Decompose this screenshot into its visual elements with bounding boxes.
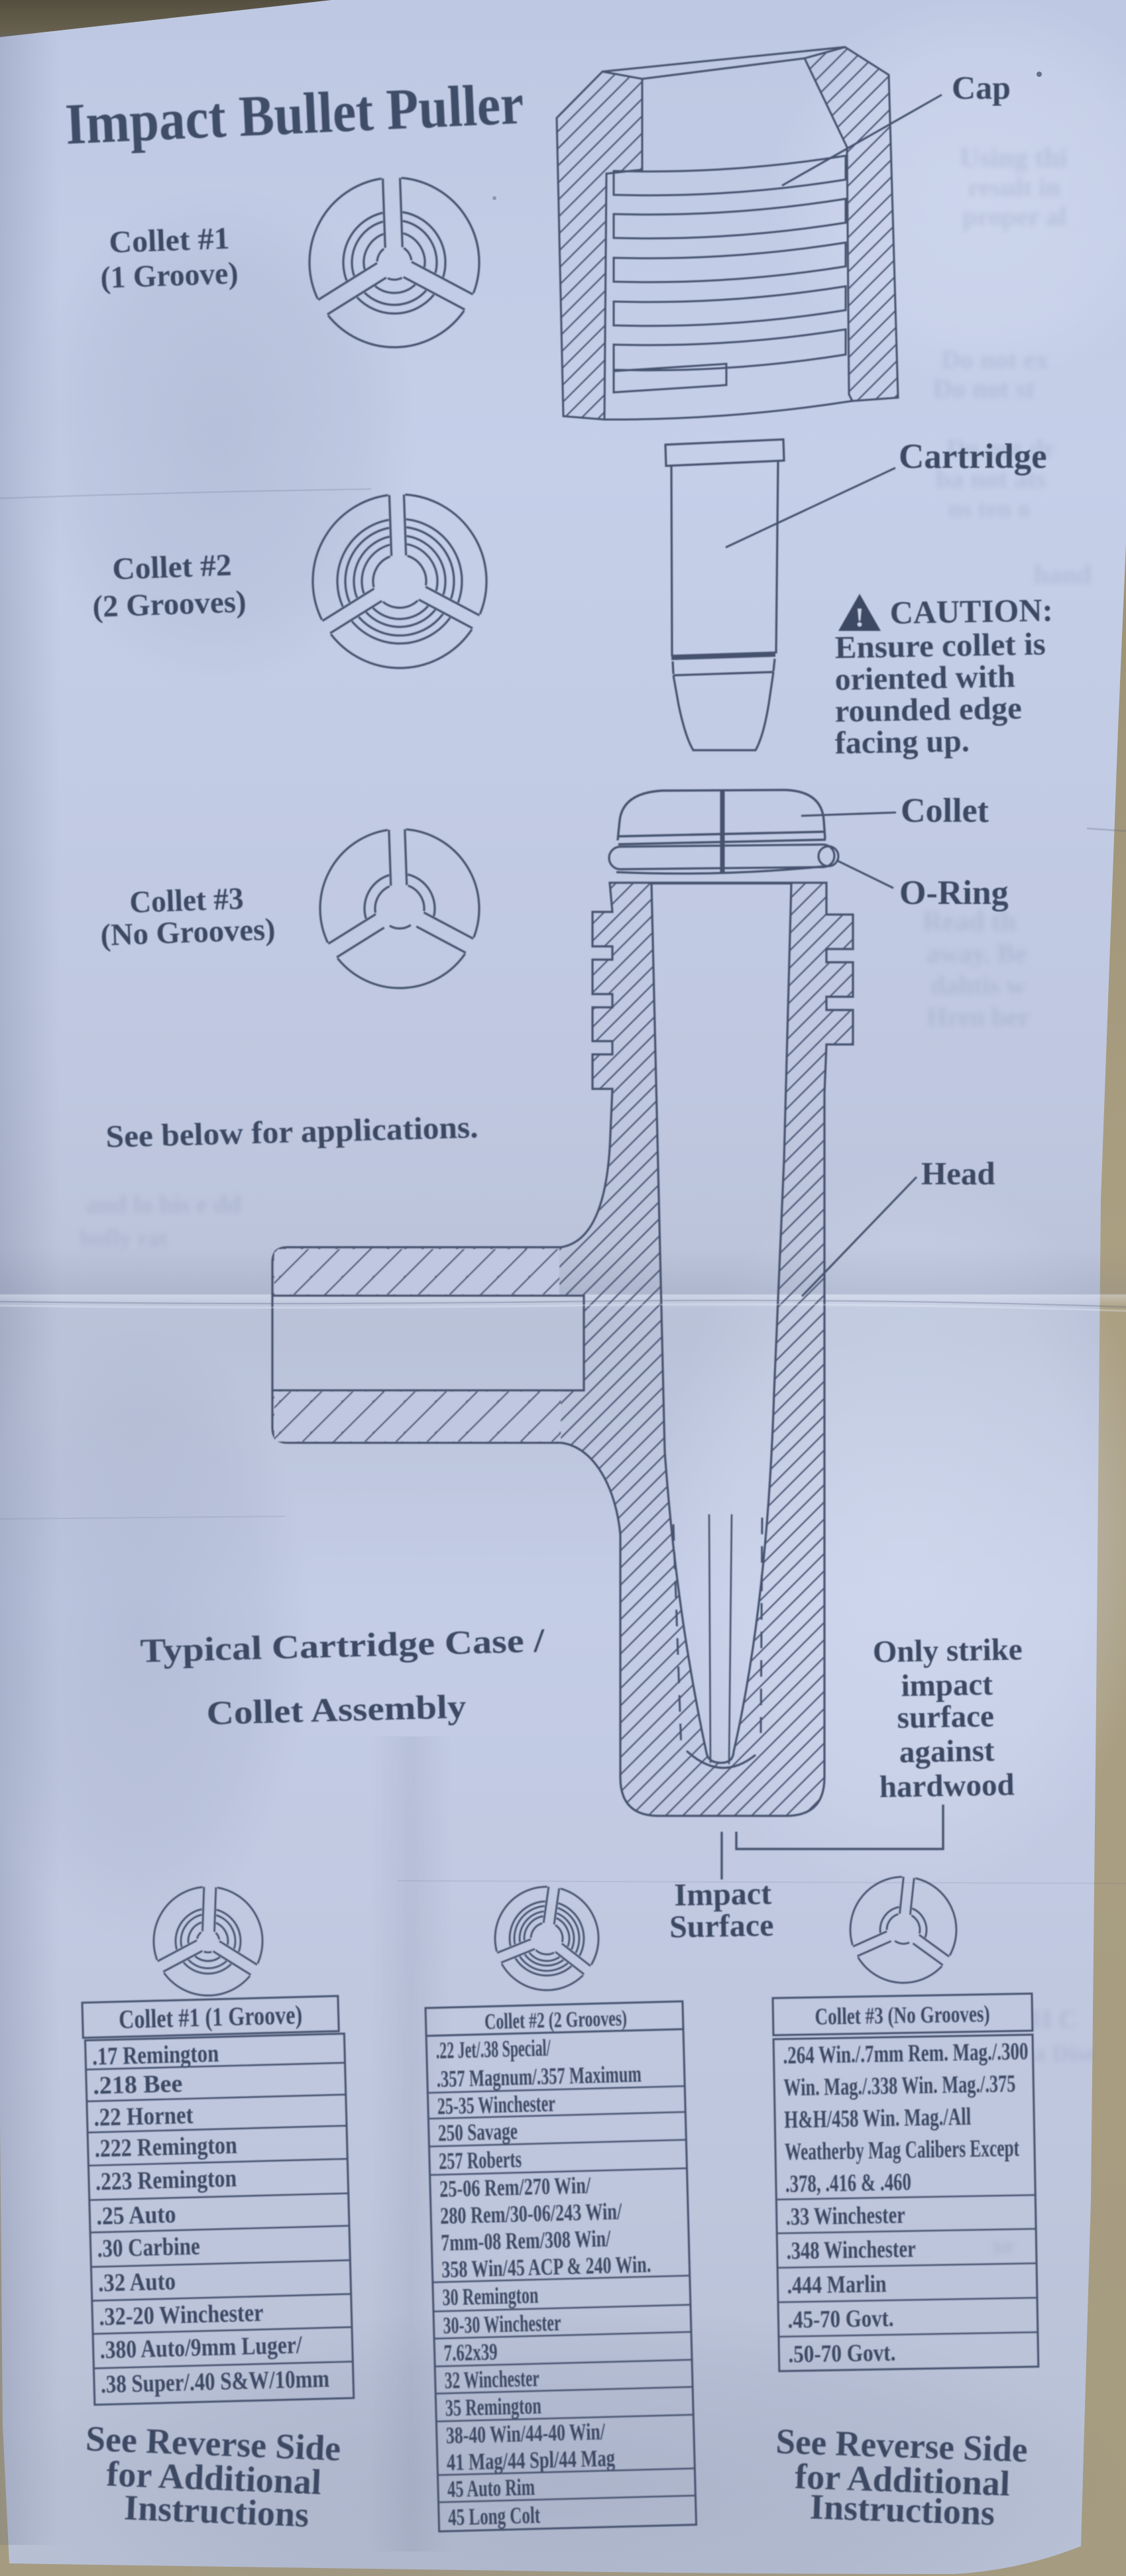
svg-text:Cartridge: Cartridge <box>899 437 1047 476</box>
svg-text:Collet #2: Collet #2 <box>112 548 233 587</box>
svg-text:rounded edge: rounded edge <box>834 691 1022 729</box>
svg-text:.32 Auto: .32 Auto <box>98 2267 176 2297</box>
svg-text:Collet: Collet <box>901 792 989 830</box>
svg-text:O-Ring: O-Ring <box>899 874 1009 912</box>
svg-text:.444 Marlin: .444 Marlin <box>787 2270 887 2300</box>
svg-text:.45-70 Govt.: .45-70 Govt. <box>787 2305 894 2334</box>
svg-text:and lo his e dd: and lo his e dd <box>86 1191 241 1219</box>
svg-text:.33 Winchester: .33 Winchester <box>785 2202 905 2231</box>
svg-text:(2 Grooves): (2 Grooves) <box>92 585 247 624</box>
svg-text:38-40 Win/44-40 Win/: 38-40 Win/44-40 Win/ <box>445 2418 606 2448</box>
svg-text:280 Rem/30-06/243 Win/: 280 Rem/30-06/243 Win/ <box>440 2198 623 2229</box>
svg-text:45 Auto Rim: 45 Auto Rim <box>447 2473 535 2502</box>
svg-text:Collet #3 (No Grooves): Collet #3 (No Grooves) <box>815 2000 990 2030</box>
svg-text:Collet #2 (2 Grooves): Collet #2 (2 Grooves) <box>484 2006 628 2035</box>
svg-text:proper al: proper al <box>962 201 1066 231</box>
svg-text:Weatherby Mag Calibers Except: Weatherby Mag Calibers Except <box>785 2135 1020 2166</box>
svg-text:.25 Auto: .25 Auto <box>96 2200 176 2230</box>
svg-text:Surface: Surface <box>669 1908 774 1945</box>
svg-text:result in: result in <box>968 172 1060 202</box>
svg-text:7mm-08 Rem/308 Win/: 7mm-08 Rem/308 Win/ <box>441 2225 612 2256</box>
svg-text:CAUTION:: CAUTION: <box>889 592 1053 631</box>
svg-text:Hren ber: Hren ber <box>927 1002 1030 1032</box>
svg-text:.222 Remington: .222 Remington <box>94 2131 237 2163</box>
svg-text:(No Grooves): (No Grooves) <box>100 912 276 952</box>
svg-text:45 Long Colt: 45 Long Colt <box>448 2502 541 2531</box>
svg-text:.218 Bee: .218 Bee <box>93 2070 183 2100</box>
svg-text:H C: H C <box>1031 2004 1078 2034</box>
svg-text:Collet #1: Collet #1 <box>109 221 231 260</box>
svg-text:xe: xe <box>991 2232 1014 2259</box>
svg-text:30-30 Winchester: 30-30 Winchester <box>443 2309 561 2339</box>
svg-text:Collet Assembly: Collet Assembly <box>206 1689 467 1732</box>
svg-text:.22 Jet/.38 Special/: .22 Jet/.38 Special/ <box>435 2035 551 2064</box>
svg-text:Cap: Cap <box>952 69 1011 106</box>
svg-text:Win. Mag./.338 Win. Mag./.375: Win. Mag./.338 Win. Mag./.375 <box>783 2070 1016 2101</box>
svg-text:Head: Head <box>921 1155 995 1192</box>
svg-text:.22 Hornet: .22 Hornet <box>93 2101 194 2132</box>
svg-text:Only strike: Only strike <box>872 1632 1023 1669</box>
svg-text:.378, .416 & .460: .378, .416 & .460 <box>785 2168 912 2198</box>
svg-text:hardwood: hardwood <box>879 1767 1015 1805</box>
svg-text:H&H/458 Win. Mag./All: H&H/458 Win. Mag./All <box>784 2103 972 2134</box>
svg-text:facing up.: facing up. <box>834 723 970 761</box>
svg-text:Instructions: Instructions <box>809 2487 995 2533</box>
svg-text:35 Remington: 35 Remington <box>445 2392 541 2422</box>
svg-text:Collet #1 (1 Groove): Collet #1 (1 Groove) <box>119 1999 303 2034</box>
svg-text:25-06 Rem/270 Win/: 25-06 Rem/270 Win/ <box>439 2172 592 2202</box>
svg-text:against: against <box>899 1734 995 1770</box>
svg-text:Using thi: Using thi <box>960 143 1068 174</box>
svg-text:30 Remington: 30 Remington <box>442 2282 539 2311</box>
svg-text:surface: surface <box>897 1699 994 1736</box>
svg-text:Do not st: Do not st <box>933 374 1035 404</box>
svg-text:Do not ex: Do not ex <box>941 345 1048 374</box>
svg-text:impact: impact <box>901 1667 993 1703</box>
svg-text:7.62x39: 7.62x39 <box>443 2338 498 2366</box>
svg-text:dahtis w: dahtis w <box>930 970 1025 1000</box>
svg-text:.30 Carbine: .30 Carbine <box>97 2232 200 2263</box>
svg-text:.380 Auto/9mm Luger/: .380 Auto/9mm Luger/ <box>99 2331 302 2364</box>
svg-text:.50-70 Govt.: .50-70 Govt. <box>788 2339 896 2369</box>
svg-text:.32-20 Winchester: .32-20 Winchester <box>99 2299 264 2331</box>
svg-text:(1 Groove): (1 Groove) <box>100 256 239 295</box>
svg-text:ns ten o: ns ten o <box>948 495 1031 523</box>
svg-text:Instructions: Instructions <box>123 2487 310 2534</box>
svg-text:bofly rat: bofly rat <box>80 1225 168 1251</box>
svg-text:!: ! <box>855 602 864 632</box>
svg-text:32 Winchester: 32 Winchester <box>444 2365 539 2394</box>
svg-text:.264 Win./.7mm Rem. Mag./.300: .264 Win./.7mm Rem. Mag./.300 <box>783 2038 1029 2069</box>
svg-text:a Dise: a Dise <box>1034 2040 1096 2066</box>
svg-text:away. Be: away. Be <box>927 938 1027 968</box>
svg-text:257 Roberts: 257 Roberts <box>439 2146 522 2174</box>
svg-text:.348 Winchester: .348 Winchester <box>786 2235 916 2265</box>
svg-text:.223 Remington: .223 Remington <box>95 2164 237 2196</box>
svg-text:hand: hand <box>1034 559 1092 589</box>
